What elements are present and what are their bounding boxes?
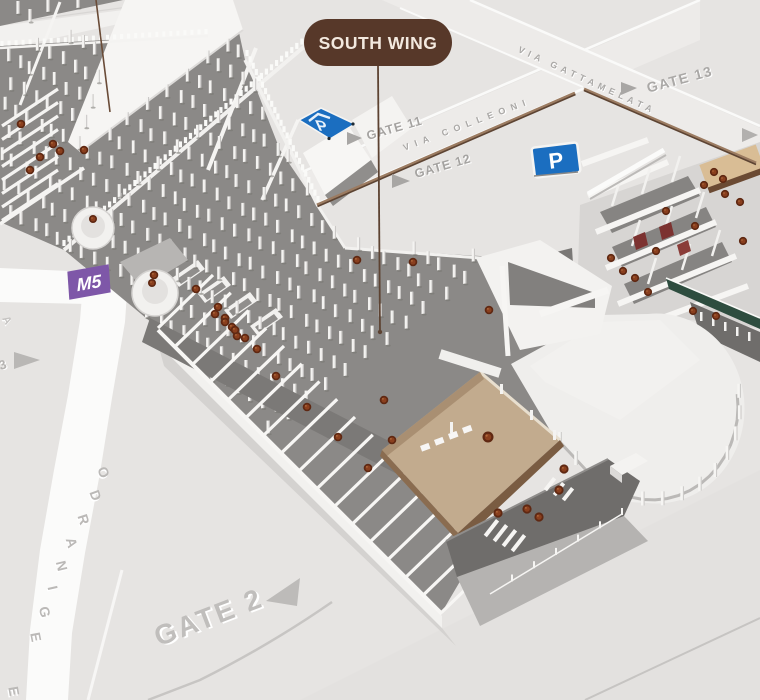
svg-text:SOUTH WING: SOUTH WING	[319, 33, 438, 53]
svg-text:P: P	[547, 147, 565, 174]
